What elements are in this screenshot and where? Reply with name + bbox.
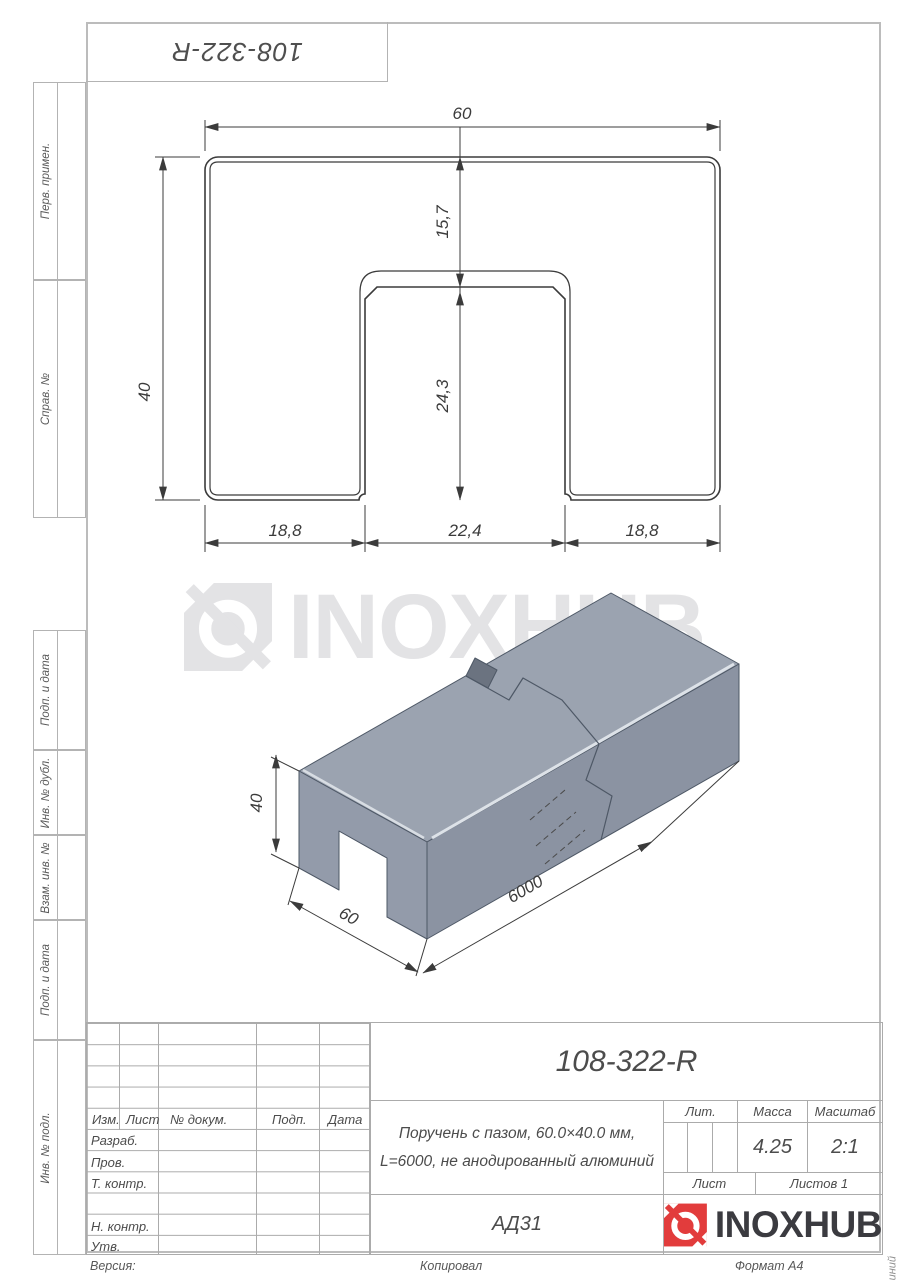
margin-label: Взам. инв. № xyxy=(40,842,52,913)
stamp-description: Поручень с пазом, 60.0×40.0 мм, L=6000, … xyxy=(370,1100,664,1195)
stamp-row-nkontr: Н. контр. xyxy=(91,1219,150,1234)
stamp-row-utv: Утв. xyxy=(91,1239,121,1254)
stamp-col-doc: № докум. xyxy=(170,1112,227,1127)
file-note: Файл: 108-322-R_Поручень с пазом, 60.0×4… xyxy=(887,1256,899,1280)
margin-label: Подп. и дата xyxy=(40,944,52,1016)
stamp-divider xyxy=(712,1122,713,1173)
iso-dim-width: 60 xyxy=(336,903,362,929)
margin-box-inv-dubl: Инв. № дубл. xyxy=(33,750,86,835)
dim-slot-depth: 24,3 xyxy=(433,379,452,414)
margin-box-sprav: Справ. № xyxy=(33,280,86,518)
margin-label: Перв. примен. xyxy=(40,143,52,219)
dim-bottom-right: 18,8 xyxy=(625,521,659,540)
stamp-doc-number: 108-322-R xyxy=(370,1022,883,1101)
dim-bottom-left: 18,8 xyxy=(268,521,302,540)
stamp-divider xyxy=(687,1122,688,1173)
footer-version: Версия: xyxy=(90,1259,136,1273)
dim-height: 40 xyxy=(135,382,154,401)
margin-label: Инв. № дубл. xyxy=(40,757,52,828)
margin-box-inv-podl: Инв. № подл. xyxy=(33,1040,86,1255)
drawing-sheet: Перв. примен. Справ. № Подп. и дата Инв.… xyxy=(0,0,905,1280)
margin-label: Инв. № подл. xyxy=(40,1112,52,1183)
footer-copied: Копировал xyxy=(420,1259,482,1273)
iso-dim-height: 40 xyxy=(247,793,266,812)
stamp-lit-cells xyxy=(663,1122,738,1173)
margin-label: Справ. № xyxy=(40,373,52,425)
margin-box-vzam-inv: Взам. инв. № xyxy=(33,835,86,920)
stamp-col-izm: Изм. xyxy=(92,1112,120,1127)
stamp-massa-header: Масса xyxy=(737,1100,808,1123)
profile-inner-contour xyxy=(210,162,715,495)
margin-box-podp-data-1: Подп. и дата xyxy=(33,630,86,750)
stamp-scale-value: 2:1 xyxy=(807,1122,883,1173)
stamp-list-cell: Лист xyxy=(663,1172,756,1195)
inoxhub-logo-text: INOXHUB xyxy=(715,1204,882,1246)
stamp-material-cell: АД31 xyxy=(370,1194,664,1255)
stamp-lit-header: Лит. xyxy=(663,1100,738,1123)
stamp-logo-cell: INOXHUB xyxy=(663,1194,883,1255)
stamp-row-tkontr: Т. контр. xyxy=(91,1176,147,1191)
stamp-col-data: Дата xyxy=(328,1112,362,1127)
stamp-divider xyxy=(256,1022,257,1255)
stamp-col-podp: Подп. xyxy=(272,1112,307,1127)
footer-format: Формат А4 xyxy=(735,1259,803,1273)
dimension-lines xyxy=(163,127,720,543)
stamp-divider xyxy=(319,1022,320,1255)
profile-outer-contour xyxy=(205,157,720,500)
stamp-massa-value: 4.25 xyxy=(737,1122,808,1173)
stamp-scale-header: Масштаб xyxy=(807,1100,883,1123)
stamp-row-razrab: Разраб. xyxy=(91,1133,138,1148)
dim-bottom-mid: 22,4 xyxy=(447,521,481,540)
margin-box-podp-data-2: Подп. и дата xyxy=(33,920,86,1040)
inoxhub-logo-icon xyxy=(664,1203,707,1247)
margin-label: Подп. и дата xyxy=(40,654,52,726)
cross-section-view xyxy=(155,120,720,552)
drawing-canvas: 60 40 15,7 24,3 18,8 22,4 18,8 xyxy=(86,22,883,1022)
dim-slot-top: 15,7 xyxy=(433,205,452,239)
extension-lines xyxy=(155,120,720,552)
stamp-listov-cell: Листов 1 xyxy=(755,1172,883,1195)
margin-box-perv-primen: Перв. примен. xyxy=(33,82,86,280)
dim-width: 60 xyxy=(453,104,472,123)
stamp-divider xyxy=(158,1022,159,1255)
stamp-col-list: Лист xyxy=(126,1112,159,1127)
stamp-row-prov: Пров. xyxy=(91,1155,125,1170)
